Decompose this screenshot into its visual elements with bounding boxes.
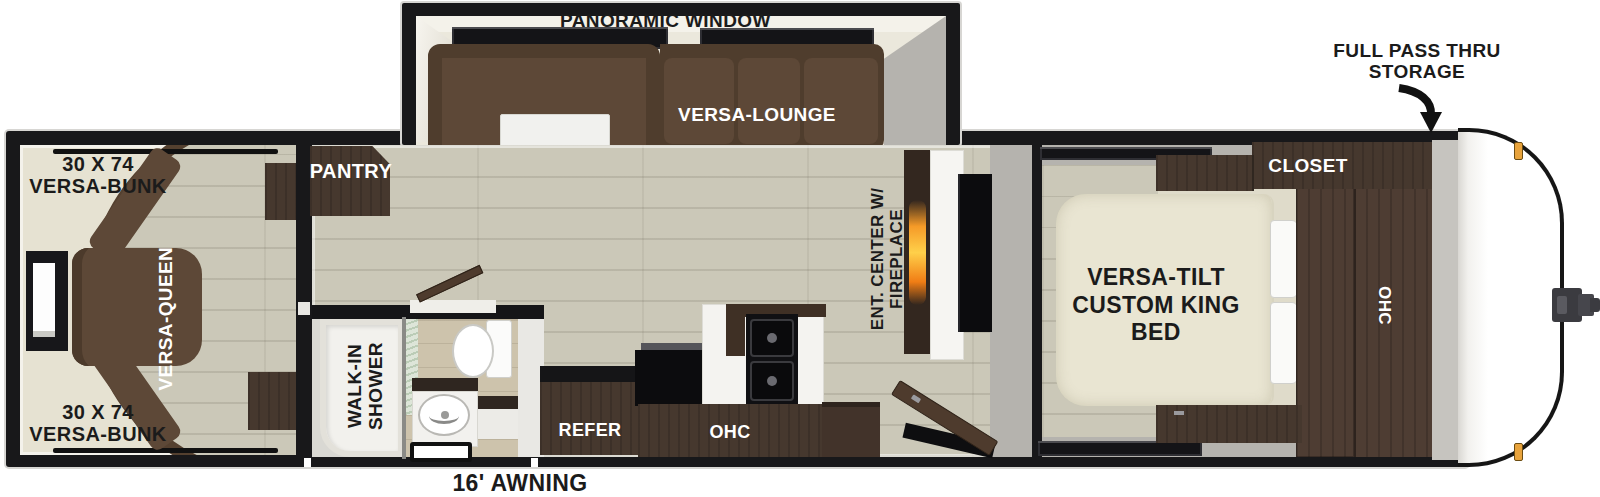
main-bedroom-wall-face bbox=[990, 145, 1032, 457]
wall-seam bbox=[531, 458, 538, 467]
marker-light-top bbox=[1514, 142, 1523, 160]
hitch-notch bbox=[1557, 296, 1567, 314]
closet-label: CLOSET bbox=[1258, 155, 1358, 176]
bath-door-threshold bbox=[410, 300, 496, 313]
marker-light-bottom bbox=[1514, 443, 1523, 461]
storage-arrow-icon bbox=[1396, 84, 1442, 134]
versa-lounge-label: VERSA-LOUNGE bbox=[672, 104, 842, 125]
kitchen-ohc-label: OHC bbox=[638, 422, 822, 442]
lounge-cushion bbox=[664, 58, 734, 144]
ent-center-label: ENT. CENTER W/ FIREPLACE bbox=[868, 184, 906, 334]
full-pass-thru-storage-label: FULL PASS THRU STORAGE bbox=[1312, 40, 1522, 83]
bunk-label-bottom: 30 X 74 VERSA-BUNK bbox=[28, 401, 168, 446]
sink-drain bbox=[767, 333, 777, 343]
bed-pillow bbox=[1270, 220, 1298, 298]
counter-trim-corner bbox=[726, 304, 745, 356]
rear-cabinet-bottom bbox=[248, 372, 296, 430]
bed-head-cabinet bbox=[1296, 188, 1354, 457]
front-cap bbox=[1458, 128, 1564, 467]
bedroom-ohc-label: OHC bbox=[1374, 276, 1393, 336]
bedroom-window-bottom bbox=[1038, 441, 1202, 456]
versa-queen-sofa bbox=[72, 248, 202, 366]
stove-cooktop bbox=[635, 350, 705, 406]
bed-pillow bbox=[1270, 302, 1298, 384]
rear-cabinet-top bbox=[265, 163, 296, 220]
door-handle bbox=[911, 394, 921, 403]
awning-label: 16' AWNING bbox=[420, 471, 620, 497]
toilet-bowl bbox=[452, 324, 494, 378]
refer-top bbox=[540, 366, 640, 382]
pass-thru-storage-corridor bbox=[1432, 140, 1458, 460]
refer-label: REFER bbox=[540, 420, 640, 440]
kitchen-sink bbox=[746, 314, 798, 406]
rear-bunk-room: 30 X 74 VERSA-BUNK 30 X 74 VERSA-BUNK VE… bbox=[20, 145, 296, 455]
king-bed-label: VERSA-TILT CUSTOM KING BED bbox=[1072, 264, 1240, 347]
walk-in-shower-label: WALK-IN SHOWER bbox=[344, 321, 384, 451]
wall-seam bbox=[304, 458, 311, 467]
fireplace-flame bbox=[909, 200, 926, 305]
lounge-cushion bbox=[738, 58, 800, 144]
pantry-label: PANTRY bbox=[306, 160, 396, 182]
panoramic-window-label: PANORAMIC WINDOW bbox=[560, 10, 760, 31]
side-counter bbox=[478, 409, 518, 439]
cabinet-handle bbox=[1174, 411, 1184, 415]
bath-sink-overflow bbox=[429, 408, 459, 424]
bath-mat bbox=[410, 442, 472, 462]
sink-drain bbox=[767, 376, 777, 386]
rear-window-glass bbox=[33, 263, 55, 337]
versa-queen-label: VERSA-QUEEN bbox=[155, 239, 176, 399]
rear-room-door-gap bbox=[298, 302, 310, 315]
refer-cabinet bbox=[540, 382, 640, 455]
floorplan-canvas: VERSA-LOUNGE PANORAMIC WINDOW 30 X 74 VE… bbox=[0, 0, 1600, 497]
bed-overhead-cabinet bbox=[1156, 155, 1254, 191]
rear-window-frame bbox=[26, 251, 68, 351]
hitch-tongue bbox=[1590, 298, 1600, 312]
bed-foot-cabinet bbox=[1156, 405, 1302, 443]
kitchen-ohc-end-cabinet bbox=[822, 402, 880, 457]
bunk-label-top: 30 X 74 VERSA-BUNK bbox=[28, 153, 168, 198]
bunk-rail-bottom bbox=[53, 448, 278, 453]
tv-screen bbox=[958, 174, 992, 332]
lounge-cushion bbox=[804, 58, 878, 144]
side-counter-trim bbox=[478, 396, 518, 409]
vanity-top-trim bbox=[412, 378, 478, 391]
